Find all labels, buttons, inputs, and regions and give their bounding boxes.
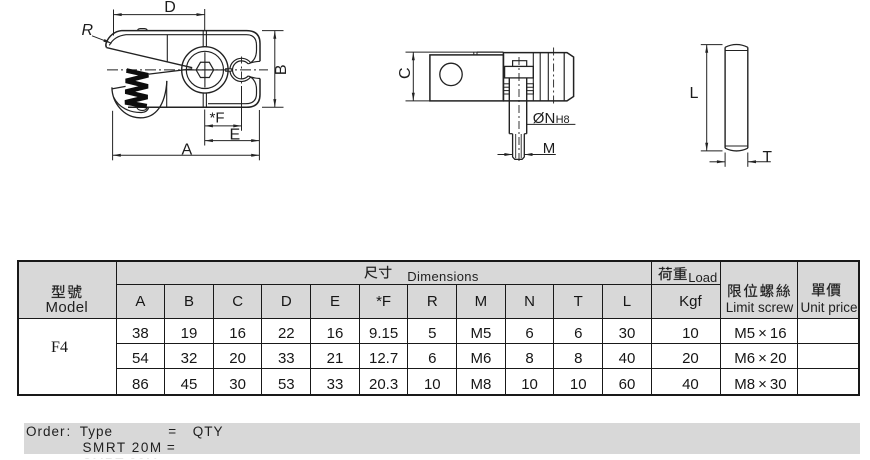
svg-text:L: L	[690, 85, 699, 102]
svg-text:M: M	[543, 140, 556, 157]
svg-text:ØN: ØN	[533, 110, 556, 127]
svg-text:T: T	[763, 149, 773, 166]
svg-text:A: A	[182, 142, 193, 159]
svg-text:R: R	[82, 22, 94, 39]
svg-text:H8: H8	[556, 114, 570, 126]
svg-text:E: E	[230, 126, 241, 143]
svg-text:B: B	[273, 64, 290, 75]
svg-text:D: D	[164, 0, 176, 16]
svg-text:*F: *F	[210, 109, 225, 126]
svg-text:C: C	[397, 67, 414, 79]
